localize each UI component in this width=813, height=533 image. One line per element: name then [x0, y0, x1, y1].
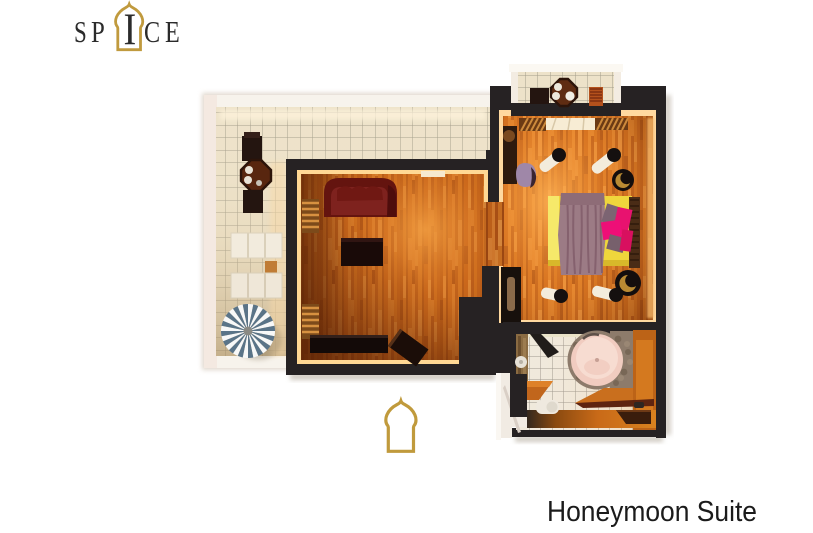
svg-text:Honeymoon Suite: Honeymoon Suite: [547, 496, 757, 528]
svg-text:S: S: [74, 15, 87, 49]
svg-text:I: I: [124, 6, 137, 56]
svg-text:P: P: [91, 15, 105, 49]
svg-text:E: E: [165, 15, 180, 50]
svg-text:C: C: [144, 15, 160, 50]
